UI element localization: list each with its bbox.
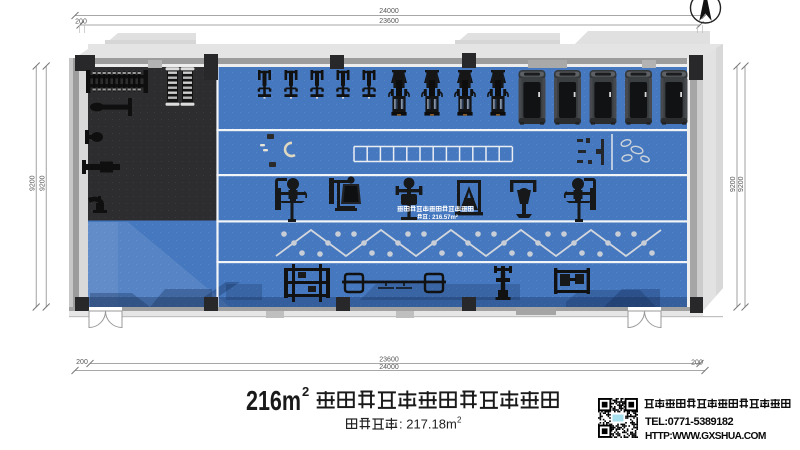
svg-text:: 216.57m²: : 216.57m²: [429, 214, 458, 221]
svg-text:216m: 216m: [246, 385, 301, 416]
svg-text:9200: 9200: [730, 176, 737, 192]
svg-text:TEL:0771-5389182: TEL:0771-5389182: [645, 416, 734, 428]
svg-text:200: 200: [691, 360, 703, 367]
svg-text:2: 2: [457, 416, 462, 425]
svg-text:9200: 9200: [30, 175, 37, 191]
svg-text:: 217.18m: : 217.18m: [399, 417, 457, 432]
svg-text:9200: 9200: [40, 175, 47, 191]
svg-text:23600: 23600: [379, 357, 399, 364]
svg-text:HTTP:WWW.GXSHUA.COM: HTTP:WWW.GXSHUA.COM: [645, 431, 766, 442]
svg-text:23600: 23600: [379, 18, 399, 25]
svg-text:24000: 24000: [379, 8, 399, 15]
svg-text:200: 200: [76, 359, 88, 366]
svg-text:24000: 24000: [379, 364, 399, 371]
svg-text:2: 2: [302, 384, 309, 399]
svg-text:200: 200: [75, 19, 87, 26]
svg-text:9200: 9200: [738, 176, 745, 192]
